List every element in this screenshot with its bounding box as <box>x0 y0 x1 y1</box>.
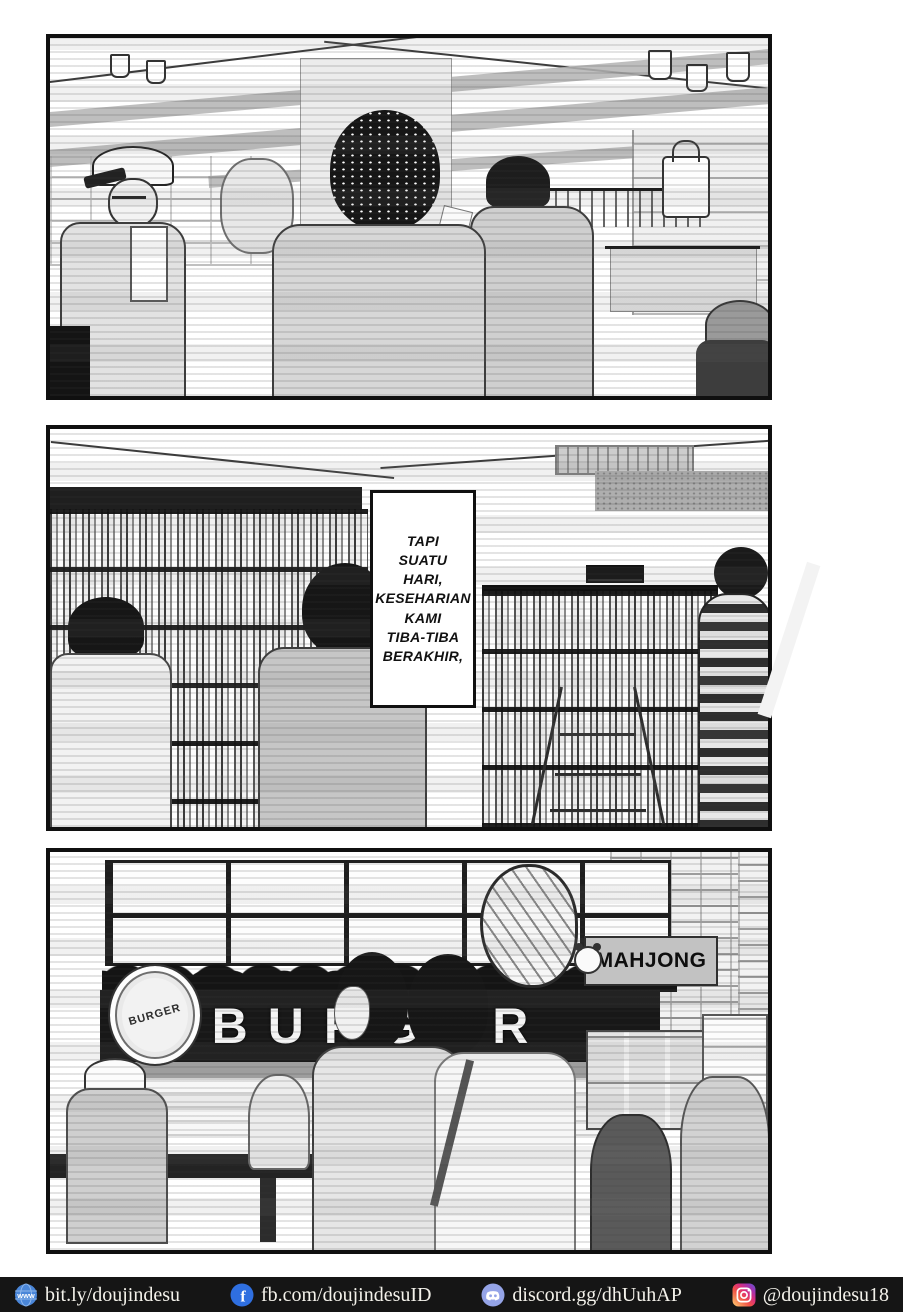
footer-link-facebook[interactable]: f fb.com/doujindesuID <box>230 1283 432 1307</box>
bubble-line: KAMI <box>405 609 442 628</box>
badge-text: BURGER <box>128 1002 183 1028</box>
main-character-head <box>330 110 440 230</box>
bubble-line: HARI, <box>403 570 443 589</box>
pendant-lamp <box>726 52 750 82</box>
beanie-person-body <box>696 340 772 396</box>
bubble-line: KESEHARIAN <box>375 589 471 608</box>
small-hooded-person <box>248 1074 310 1170</box>
right-customer-head <box>714 547 768 599</box>
pendant-lamp <box>686 64 708 92</box>
footer-link-discord[interactable]: discord.gg/dhUuhAP <box>481 1283 681 1307</box>
companion-head <box>408 954 488 1056</box>
main-character-body <box>272 224 486 400</box>
panel-burger-shop: BURGER BURGER MAHJONG <box>46 848 772 1254</box>
step-ladder <box>550 687 646 827</box>
bubble-line: BERAKHIR, <box>383 647 463 666</box>
burger-logo-badge: BURGER <box>108 964 202 1066</box>
shelf-top-beam <box>50 487 362 509</box>
discord-icon <box>481 1283 505 1307</box>
capped-customer-body <box>50 653 172 831</box>
mahjong-sign-text: MAHJONG <box>596 949 707 973</box>
right-pedestrian <box>680 1076 770 1254</box>
bubble-line: TAPI <box>407 532 439 551</box>
shopper-cap-head <box>486 156 550 208</box>
tote-bag <box>662 156 710 218</box>
pendant-lamp <box>110 54 130 78</box>
counter-dark <box>50 326 90 396</box>
mahjong-signboard: MAHJONG <box>584 936 718 986</box>
pendant-lamp <box>146 60 166 84</box>
footer-link-instagram[interactable]: @doujindesu18 <box>732 1283 889 1307</box>
footer-link-label: bit.ly/doujindesu <box>45 1285 180 1305</box>
companion-body <box>434 1052 576 1254</box>
bubble-line: TIBA-TIBA <box>387 628 460 647</box>
bubble-line: SUATU <box>399 551 448 570</box>
shopper-body <box>470 206 594 400</box>
glasses <box>112 196 146 199</box>
svg-text:f: f <box>240 1288 246 1305</box>
footer-link-label: @doujindesu18 <box>763 1285 889 1305</box>
panda-mascot <box>574 946 602 974</box>
shoulder-towel <box>130 226 168 302</box>
bread-sculpture <box>480 864 578 988</box>
upper-wall-band <box>595 471 768 511</box>
hooded-person-back <box>590 1114 672 1254</box>
capped-customer-head <box>68 597 144 657</box>
pendant-lamp <box>648 50 672 80</box>
seated-person-body <box>66 1088 168 1244</box>
panel-clothing-store <box>46 34 772 400</box>
footer-links-bar: www bit.ly/doujindesu f fb.com/doujindes… <box>0 1277 903 1312</box>
ceiling-line <box>51 441 394 479</box>
stool-leg <box>260 1178 276 1242</box>
facebook-icon: f <box>230 1283 254 1307</box>
footer-link-label: discord.gg/dhUuhAP <box>512 1285 681 1305</box>
panel-bookstore: TAPI SUATU HARI, KESEHARIAN KAMI TIBA-TI… <box>46 425 772 831</box>
aisle-sign <box>586 565 644 583</box>
instagram-icon <box>732 1283 756 1307</box>
left-shopper-face <box>108 178 158 228</box>
walking-man-face <box>334 986 370 1040</box>
footer-link-label: fb.com/doujindesuID <box>261 1285 432 1305</box>
www-globe-icon: www <box>14 1283 38 1307</box>
svg-text:www: www <box>16 1290 35 1299</box>
footer-link-website[interactable]: www bit.ly/doujindesu <box>14 1283 180 1307</box>
speech-bubble: TAPI SUATU HARI, KESEHARIAN KAMI TIBA-TI… <box>370 490 476 708</box>
